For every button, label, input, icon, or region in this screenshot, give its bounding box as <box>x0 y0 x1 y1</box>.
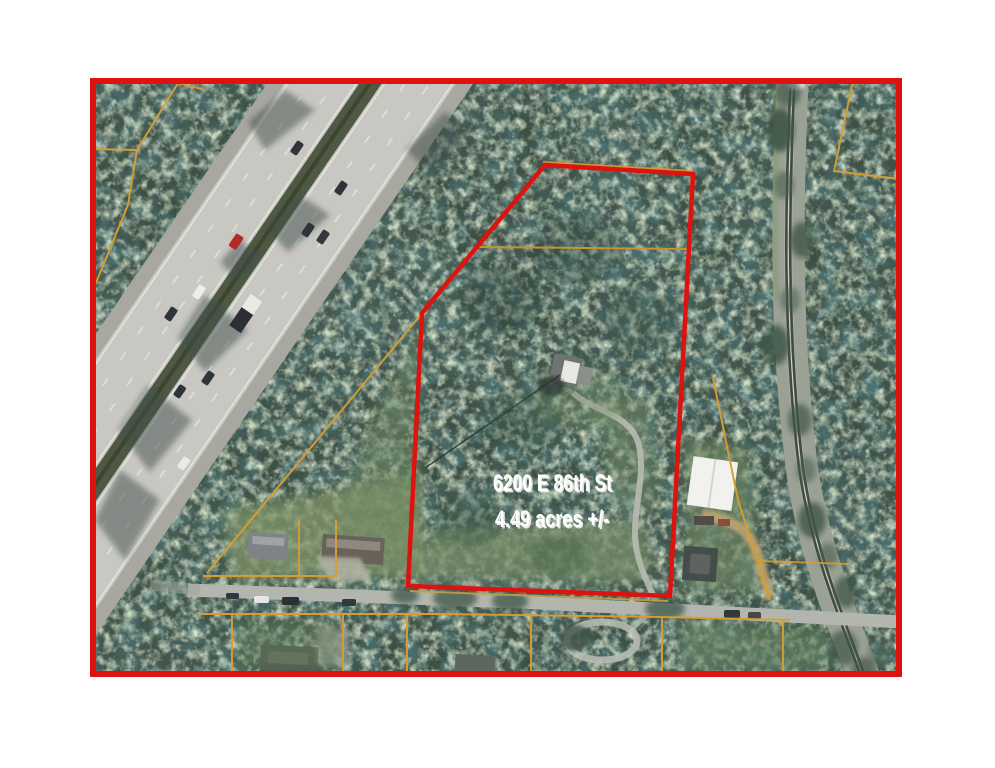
svg-text:4.49 acres +/-: 4.49 acres +/- <box>495 506 609 533</box>
svg-text:6200 E 86th St: 6200 E 86th St <box>493 470 612 497</box>
